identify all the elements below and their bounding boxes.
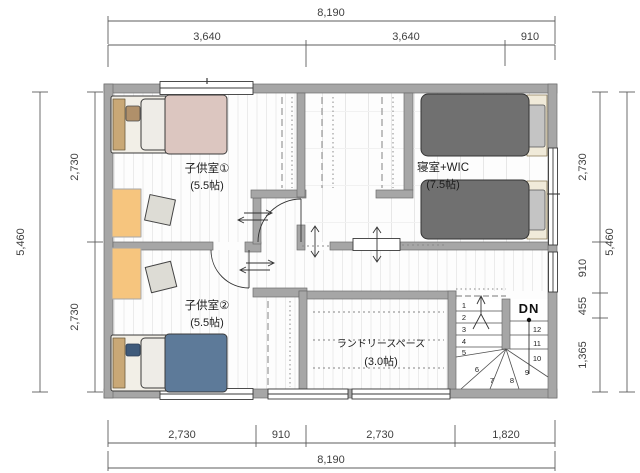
room-label-laundry: ランドリースペース	[337, 338, 425, 350]
dim-bottom-total: 8,190	[317, 454, 345, 466]
bed-kids2-cushion	[126, 344, 140, 356]
bed-kids1-blanket	[165, 95, 227, 154]
dim-top-seg: 3,640	[392, 31, 420, 43]
stair-step-number: 8	[510, 376, 514, 385]
stair-step-number: 1	[462, 301, 466, 310]
dim-bottom-seg: 910	[272, 429, 290, 441]
bed-kids2	[111, 334, 227, 392]
down-label: DN	[519, 301, 540, 316]
stair-step-number: 5	[462, 348, 466, 357]
dim-right-seg: 910	[577, 259, 589, 277]
stair-step-number: 11	[533, 339, 541, 348]
wall-laundry-top	[299, 291, 456, 299]
dim-bottom-seg: 1,820	[492, 429, 520, 441]
floor-hall	[261, 198, 297, 288]
room-label-kids1: 子供室①	[185, 161, 230, 175]
wall-closet1-wic-divider	[297, 93, 305, 197]
bed-kids2-blanket	[165, 334, 227, 392]
desk-kids2	[112, 248, 141, 299]
floor-corridor	[305, 250, 548, 291]
dim-right-seg: 2,730	[577, 153, 589, 181]
room-label-master: 寝室+WIC	[417, 160, 469, 174]
wall-wic-south-stub	[376, 190, 413, 198]
chair-kids1	[145, 195, 176, 226]
wall-hall-west	[253, 198, 261, 244]
dim-top-total: 8,190	[317, 7, 345, 19]
dim-left-seg: 2,730	[69, 303, 81, 331]
wall-master-south-b	[400, 242, 548, 250]
dim-right-seg: 1,365	[577, 341, 589, 369]
chair-kids2	[145, 261, 177, 293]
room-size-kids1: (5.5帖)	[190, 179, 224, 192]
stair-step-number: 9	[525, 368, 529, 377]
desk-kids1	[112, 189, 141, 237]
dim-right: 2,730 910 455 1,365 5,460	[577, 92, 635, 392]
wall-stairs-west	[448, 291, 456, 389]
stair-step-number: 4	[462, 337, 466, 346]
wall-stairs-newel	[502, 299, 510, 349]
stair-step-number: 6	[475, 365, 479, 374]
bed-kids1	[111, 95, 227, 154]
wall-laundry-west	[299, 291, 307, 389]
dim-bottom-seg: 2,730	[168, 429, 196, 441]
dim-top: 8,190 3,640 3,640 910	[108, 7, 555, 67]
room-size-master: (7.5帖)	[426, 178, 460, 191]
floor-plan-drawing: 1 2 3 4 5 6 7 8 9 10 11 12 DN 子供室① (5.5帖…	[0, 0, 640, 473]
dim-top-seg: 910	[521, 31, 539, 43]
dim-right-seg: 455	[577, 297, 589, 315]
dim-right-total: 5,460	[604, 228, 616, 256]
wall-wic-east	[404, 93, 413, 190]
bed-kids1-headboard	[113, 99, 125, 150]
sliding-door-master	[353, 239, 400, 251]
stair-step-number: 10	[533, 354, 541, 363]
bed-kids2-headboard	[113, 338, 125, 388]
dim-left-total: 5,460	[15, 228, 27, 256]
room-size-kids2: (5.5帖)	[190, 316, 224, 329]
wall-master-south-a	[330, 242, 355, 250]
dim-left-seg: 2,730	[69, 153, 81, 181]
stair-step-number: 7	[490, 376, 494, 385]
dim-bottom: 2,730 910 2,730 1,820 8,190	[108, 420, 555, 471]
stair-step-number: 12	[533, 325, 541, 334]
dim-bottom-seg: 2,730	[366, 429, 394, 441]
bed-master-1	[421, 94, 547, 156]
dim-left: 2,730 2,730 5,460	[15, 92, 103, 392]
bed-master1-blanket	[421, 94, 529, 156]
room-label-kids2: 子供室②	[185, 298, 230, 312]
bed-kids1-cushion	[126, 106, 140, 121]
stair-step-number: 3	[462, 325, 466, 334]
dim-top-seg: 3,640	[193, 31, 221, 43]
floor-plan-page: 1 2 3 4 5 6 7 8 9 10 11 12 DN 子供室① (5.5帖…	[0, 0, 640, 473]
room-size-laundry: (3.0帖)	[364, 355, 398, 368]
stair-step-number: 2	[462, 313, 466, 322]
